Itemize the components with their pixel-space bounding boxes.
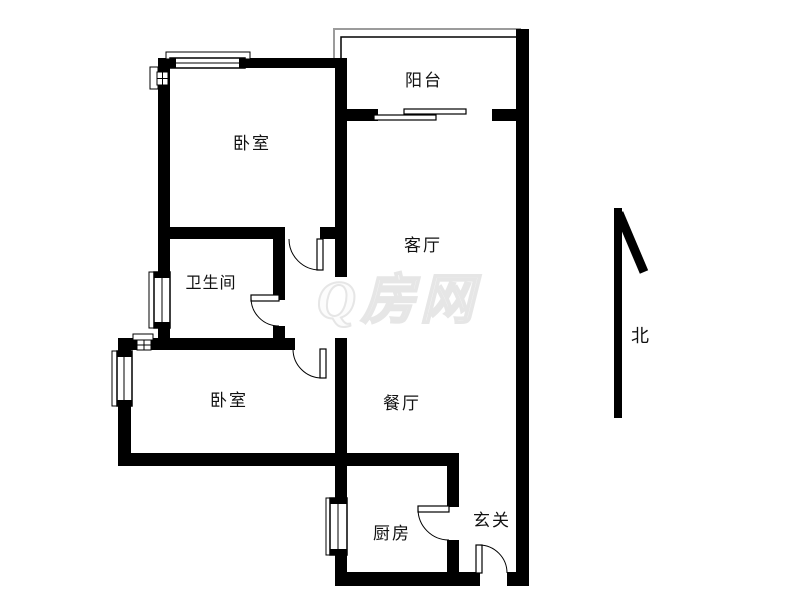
balcony-railing-inner <box>341 37 516 58</box>
wall-bottom-right-stub <box>507 572 529 586</box>
door-bathroom <box>251 295 279 326</box>
wall-kitchen-right-upper <box>447 453 459 507</box>
window-bedroom-bottom <box>112 351 132 406</box>
door-bedroom-bottom <box>293 349 326 378</box>
north-arrow-icon <box>614 208 644 418</box>
room-label-bedroom-bottom: 卧室 <box>210 391 248 410</box>
wall-right <box>516 29 529 586</box>
window-kitchen <box>326 498 347 555</box>
wall-left-upper <box>158 58 170 273</box>
room-label-living-room: 客厅 <box>404 236 442 255</box>
sliding-door-balcony <box>374 109 466 120</box>
floorplan-image: Q房网 阳台 卧室 客厅 卫生间 卧室 餐厅 厨房 玄关 北 <box>0 0 800 600</box>
room-label-bedroom-top: 卧室 <box>233 134 271 153</box>
wall-spine-upper <box>335 58 347 277</box>
wall-kitchen-left-upper <box>335 466 347 499</box>
wall-slidingdoor-stub-left <box>335 109 378 121</box>
wall-bathroom-right-upper <box>273 227 285 300</box>
wall-kitchen-right-lower <box>447 540 459 572</box>
north-label: 北 <box>631 326 651 346</box>
room-label-entryway: 玄关 <box>473 511 511 530</box>
door-entry <box>476 545 507 573</box>
room-label-balcony: 阳台 <box>405 71 443 90</box>
wall-slidingdoor-stub-right <box>492 109 517 121</box>
door-kitchen <box>418 506 449 540</box>
window-bedroom-top <box>166 52 250 68</box>
wall-spine-lower <box>335 338 347 466</box>
watermark-text: Q房网 <box>317 270 482 330</box>
wall-bottom-kitchen <box>335 572 480 586</box>
door-bedroom-top <box>289 239 323 270</box>
floorplan-svg: Q房网 阳台 卧室 客厅 卫生间 卧室 餐厅 厨房 玄关 北 <box>0 0 800 600</box>
room-label-dining-room: 餐厅 <box>383 394 421 413</box>
wall-bedroom2-kitchen-top <box>118 453 459 466</box>
wall-bedroom2-left-upper <box>118 338 131 352</box>
balcony-railing-outer <box>334 29 521 58</box>
room-label-bathroom: 卫生间 <box>185 274 236 292</box>
window-bathroom <box>149 272 170 328</box>
wall-bathroom-top <box>158 227 285 239</box>
room-label-kitchen: 厨房 <box>373 524 411 543</box>
